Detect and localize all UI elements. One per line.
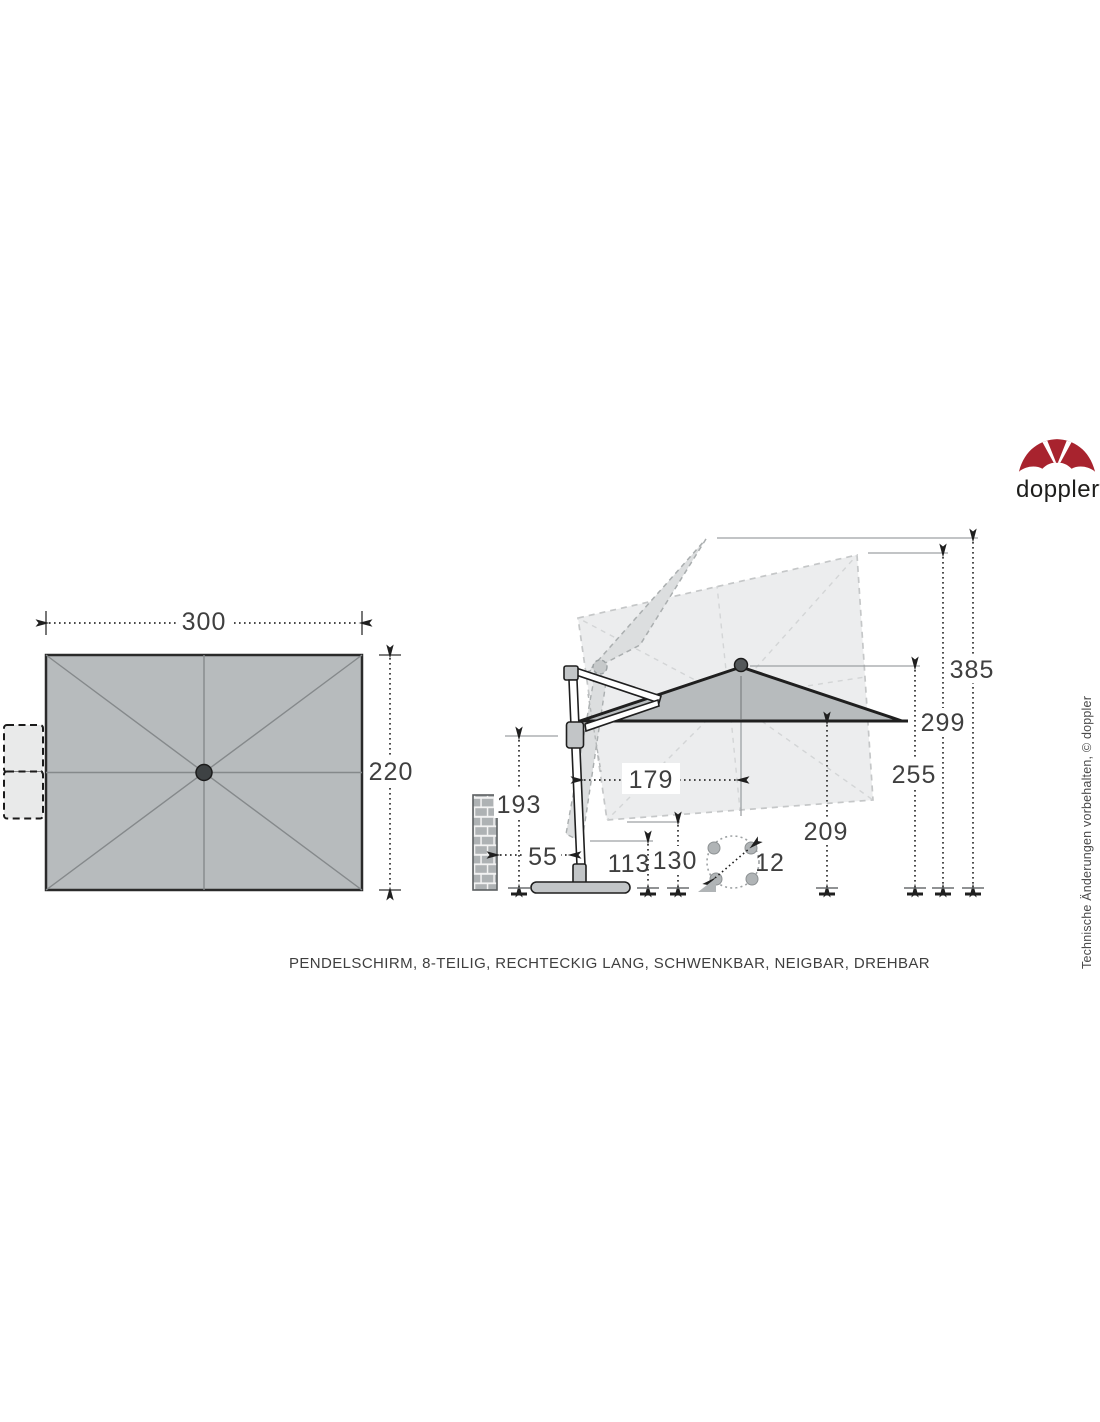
hub-ball: [735, 659, 748, 672]
center-hub-top-view: [196, 765, 212, 781]
doppler-logo: doppler®: [1014, 436, 1100, 506]
dim-canopy-edge-height: 255: [889, 670, 939, 894]
dim-label-55: 55: [528, 843, 558, 871]
logo-brand-text: doppler: [1016, 476, 1100, 503]
dim-label-220: 220: [369, 758, 414, 786]
dim-label-12: 12: [755, 849, 785, 877]
wall-brick: [473, 795, 497, 890]
rotation-indicator: 12: [698, 836, 785, 892]
dim-label-255: 255: [892, 761, 937, 789]
side-view: 12 385 299 255 209: [473, 538, 997, 894]
ghost-hub-ball: [593, 660, 607, 674]
dim-hub-height: 299: [918, 557, 968, 894]
dim-label-130: 130: [653, 847, 698, 875]
dim-label-299: 299: [921, 709, 966, 737]
dim-canopy-depth: 220: [366, 655, 416, 890]
logo-wordmark: doppler®: [1016, 476, 1100, 504]
dim-wall-distance: 55: [500, 842, 568, 871]
mast-cap: [564, 666, 578, 680]
top-view: 300 220: [4, 606, 416, 890]
dim-label-209: 209: [804, 818, 849, 846]
product-caption: PENDELSCHIRM, 8-TEILIG, RECHTECKIG LANG,…: [289, 955, 930, 972]
dim-label-179: 179: [629, 766, 674, 794]
legal-note: Technische Änderungen vorbehalten, © dop…: [1080, 696, 1094, 969]
mast-collar: [567, 722, 584, 748]
umbrella-dimension-sheet: 300 220: [0, 0, 1100, 1422]
technical-drawing: 300 220: [0, 0, 1100, 1422]
dim-tilted-clearance: 130: [652, 825, 698, 894]
dim-label-385: 385: [950, 656, 995, 684]
dim-canopy-width: 300: [46, 606, 362, 636]
base-cross-bar: [531, 882, 630, 893]
dim-label-113: 113: [608, 850, 651, 878]
umbrella-icon: [1014, 436, 1100, 480]
base-plate-ghost-top: [4, 725, 43, 772]
dim-label-193: 193: [497, 791, 542, 819]
base-plate-ghost-bottom: [4, 772, 43, 819]
dim-label-300: 300: [182, 608, 227, 636]
